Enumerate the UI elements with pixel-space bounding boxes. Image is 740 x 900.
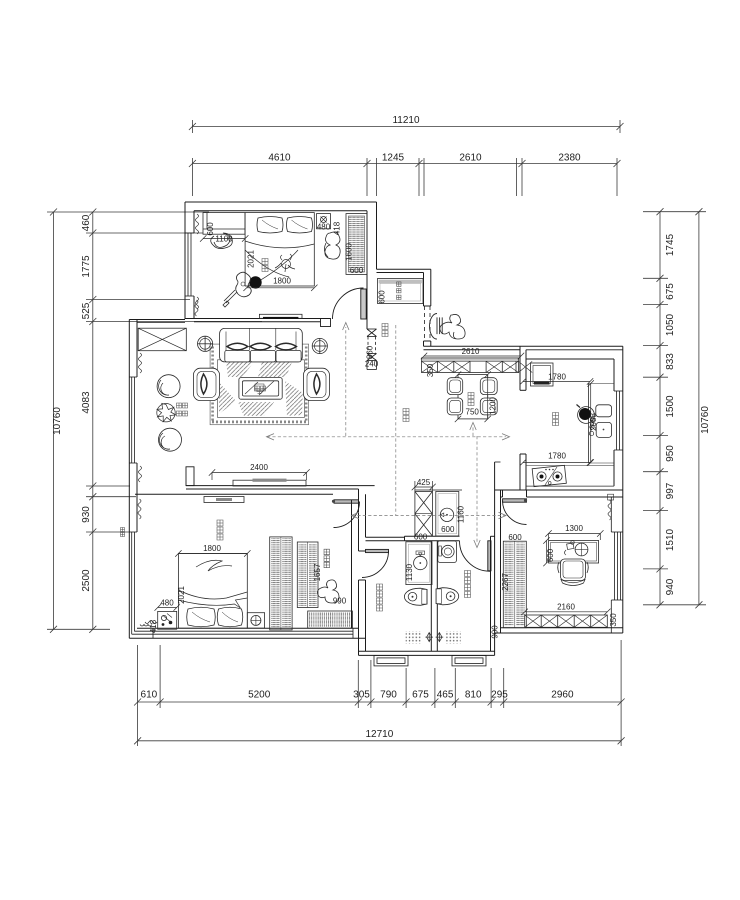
svg-text:350: 350: [609, 613, 618, 627]
svg-text:833: 833: [665, 353, 676, 370]
svg-text:990: 990: [333, 597, 347, 606]
svg-text:480: 480: [160, 599, 174, 608]
svg-text:425: 425: [417, 478, 431, 487]
svg-text:1200: 1200: [489, 397, 498, 415]
svg-text:900: 900: [491, 625, 500, 639]
svg-text:1780: 1780: [548, 373, 566, 382]
svg-text:1780: 1780: [548, 452, 566, 461]
svg-text:610: 610: [141, 690, 158, 701]
svg-text:790: 790: [380, 690, 397, 701]
svg-text:2610: 2610: [459, 153, 482, 164]
svg-text:600: 600: [206, 222, 215, 236]
svg-text:525: 525: [81, 302, 92, 319]
svg-text:12710: 12710: [365, 729, 393, 740]
svg-text:2267: 2267: [501, 573, 510, 591]
svg-text:1800: 1800: [273, 277, 291, 286]
svg-text:1800: 1800: [203, 544, 221, 553]
svg-text:2500: 2500: [81, 569, 92, 592]
svg-text:1300: 1300: [565, 524, 583, 533]
svg-text:675: 675: [412, 690, 429, 701]
svg-text:1745: 1745: [665, 233, 676, 256]
svg-text:295: 295: [491, 690, 508, 701]
svg-text:2400: 2400: [250, 463, 268, 472]
svg-text:305: 305: [353, 690, 370, 701]
svg-text:2160: 2160: [557, 603, 575, 612]
svg-text:997: 997: [665, 482, 676, 499]
svg-text:4610: 4610: [268, 153, 291, 164]
svg-text:2960: 2960: [551, 690, 574, 701]
svg-text:1130: 1130: [405, 563, 414, 581]
svg-text:1657: 1657: [313, 563, 322, 581]
svg-text:950: 950: [665, 445, 676, 462]
svg-text:2380: 2380: [558, 153, 581, 164]
svg-text:1500: 1500: [665, 395, 676, 418]
svg-text:600: 600: [546, 548, 555, 562]
svg-text:418: 418: [149, 619, 158, 633]
svg-text:600: 600: [508, 533, 522, 542]
svg-text:600: 600: [441, 525, 455, 534]
svg-text:1245: 1245: [382, 153, 405, 164]
svg-text:1510: 1510: [665, 528, 676, 551]
svg-text:1100: 1100: [215, 235, 233, 244]
svg-text:2083: 2083: [589, 413, 598, 431]
svg-text:600: 600: [414, 533, 428, 542]
svg-text:2021: 2021: [177, 586, 186, 604]
svg-text:1160: 1160: [457, 505, 466, 523]
svg-text:750: 750: [466, 408, 480, 417]
svg-text:10760: 10760: [700, 406, 711, 434]
svg-text:4083: 4083: [81, 391, 92, 414]
svg-text:11210: 11210: [392, 115, 420, 126]
svg-text:860: 860: [366, 345, 375, 359]
svg-text:675: 675: [665, 283, 676, 300]
svg-text:460: 460: [81, 214, 92, 231]
svg-text:5200: 5200: [248, 690, 271, 701]
svg-text:465: 465: [437, 690, 454, 701]
svg-text:10760: 10760: [52, 407, 63, 435]
svg-text:418: 418: [333, 221, 342, 235]
svg-text:1050: 1050: [665, 313, 676, 336]
svg-text:600: 600: [378, 290, 387, 304]
svg-text:350: 350: [426, 363, 435, 377]
svg-text:930: 930: [81, 506, 92, 523]
svg-text:940: 940: [665, 578, 676, 595]
svg-text:480: 480: [317, 223, 331, 232]
svg-text:2610: 2610: [462, 347, 480, 356]
svg-text:600: 600: [350, 266, 364, 275]
svg-text:240: 240: [365, 360, 379, 369]
svg-text:1600: 1600: [345, 243, 354, 261]
svg-text:1775: 1775: [81, 255, 92, 278]
svg-text:810: 810: [465, 690, 482, 701]
svg-text:2021: 2021: [247, 250, 256, 268]
